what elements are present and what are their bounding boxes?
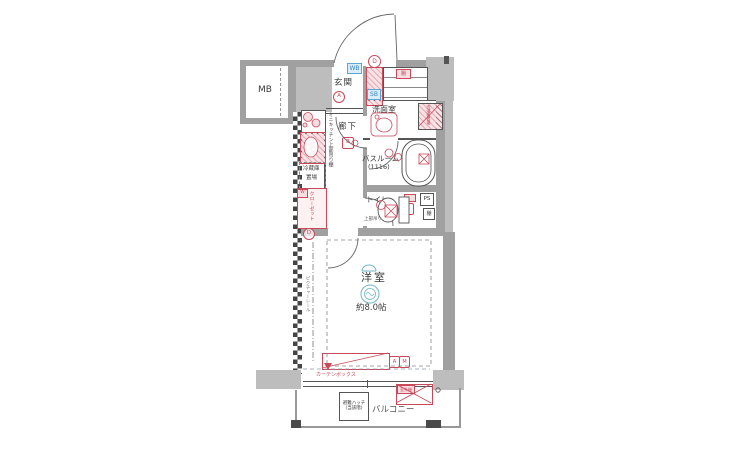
se-wall-block (433, 370, 464, 390)
ne-wall-block (426, 57, 454, 101)
hall-east-wall-4 (363, 226, 367, 236)
evacuation-hatch: 避難ハッチ (当該階) (339, 392, 369, 421)
kitchen-note-label: ミニキッチン上部吊り棚 (327, 112, 333, 174)
stove-box (301, 110, 326, 134)
mb-dashed-divider (280, 68, 281, 116)
cabinet-tag-text: 棚 (401, 72, 406, 77)
shoe-box (366, 67, 383, 106)
nw-wall-block (296, 60, 332, 112)
mark-circle-d2-text: D (307, 231, 311, 237)
mark-circle-a: A (333, 91, 345, 103)
kitchen-red-label: キッチン (308, 136, 313, 160)
picture-rail-label: ピクチャーレール (304, 276, 309, 334)
mark-box-b-text: B (346, 140, 350, 146)
balcony-label: バルコニー (372, 406, 414, 415)
washer-label: 洗濯機置場 (426, 105, 430, 127)
alarm-inner-circle (365, 289, 376, 300)
mark-circle-d: D (368, 55, 381, 68)
room-north-wall-right (358, 228, 445, 236)
window-line-1 (303, 381, 433, 382)
tub-x-2 (419, 154, 429, 164)
hatch-text-2: (当該階) (345, 407, 362, 412)
shelf-text: 棚 (426, 212, 431, 217)
room-door-arc (328, 238, 358, 268)
cabinet-tag: 棚 (396, 69, 411, 79)
mark-box-c-text: C (406, 206, 410, 212)
window-mullion (367, 380, 368, 388)
toilet-x-2 (385, 205, 397, 217)
top-wall-left (294, 60, 334, 67)
mark-circle-a-text: A (337, 94, 341, 100)
western-room-label: 洋室 (361, 272, 387, 284)
entry-tag: WB (347, 63, 362, 74)
mark-box-c: C (402, 203, 414, 215)
washbasin-counter (371, 113, 397, 136)
window-counter (322, 353, 390, 370)
genkan-label: 玄関 (334, 79, 353, 88)
floor-plan: SB WB 棚 洗濯機置場 PS 棚 上部吊り棚 キッチン ミニキッチン上部吊り… (0, 0, 730, 470)
mark-circle-d2: D (303, 228, 315, 240)
balcony-rail-right (459, 388, 461, 428)
fridge-label-1: 冷蔵庫 (303, 166, 320, 172)
mark-box-a-text: A (393, 360, 396, 365)
closet-tag-text: W (300, 191, 304, 196)
closet-label: クローゼット (308, 191, 314, 225)
toilet-x-1 (385, 205, 397, 217)
tub-x-box (419, 154, 429, 164)
top-wall-right (396, 60, 428, 67)
toilet-tag (404, 194, 416, 202)
bathroom-label: バスルーム (362, 155, 399, 163)
fridge-label-2: 置場 (306, 175, 317, 181)
east-wall-strip (445, 101, 453, 241)
shelf-box: 棚 (423, 208, 435, 220)
alarm-wave (366, 293, 374, 296)
bathtub-inner (406, 144, 431, 182)
balcony-post-right (426, 420, 441, 428)
mb-label: MB (258, 86, 272, 96)
outdoor-unit-tag: 室外機 (397, 385, 415, 394)
curtain-box-label: カーテンボックス (316, 373, 356, 379)
entrance-door-leaf (395, 15, 397, 60)
bath-top-line-right (398, 138, 436, 140)
mark-circle-d-text: D (372, 59, 377, 65)
bathtub-outer (402, 140, 435, 186)
bath-top-line-left (363, 138, 370, 140)
shoe-box-tag-text: SB (370, 92, 378, 98)
toilet-label: トイレ (366, 196, 389, 204)
ps-text: PS (424, 197, 431, 203)
entrance-door-arc (334, 14, 394, 63)
entry-tag-text: WB (349, 66, 359, 72)
tub-x-1 (419, 154, 429, 164)
bath-toilet-wall (363, 185, 440, 192)
bathroom-size-label: (1116) (368, 164, 390, 171)
shoe-box-tag: SB (367, 89, 381, 100)
hallway-label: 廊下 (338, 123, 357, 132)
sw-wall-block (256, 370, 301, 389)
ps-box: PS (420, 193, 434, 206)
toilet-shelf-label: 上部吊り棚 (364, 218, 387, 223)
toilet-x-box (385, 205, 397, 217)
bathtub (402, 140, 435, 186)
mark-box-b: B (342, 137, 354, 149)
balcony-post-left (291, 420, 301, 428)
mark-box-m: M (399, 356, 410, 368)
washbasin-faucet (375, 115, 379, 119)
washroom-label: 洗面室 (372, 106, 396, 115)
washbasin-bowl (376, 118, 392, 132)
alarm-outer-circle (361, 285, 379, 303)
alarm-icon (361, 285, 379, 303)
outdoor-unit-text: 室外機 (400, 388, 412, 392)
washbasin (371, 113, 397, 136)
room-east-wall (443, 232, 455, 375)
closet-tag: W (297, 189, 308, 198)
mark-box-m-text: M (402, 360, 406, 365)
western-room-size-label: 約8.0帖 (356, 304, 387, 313)
